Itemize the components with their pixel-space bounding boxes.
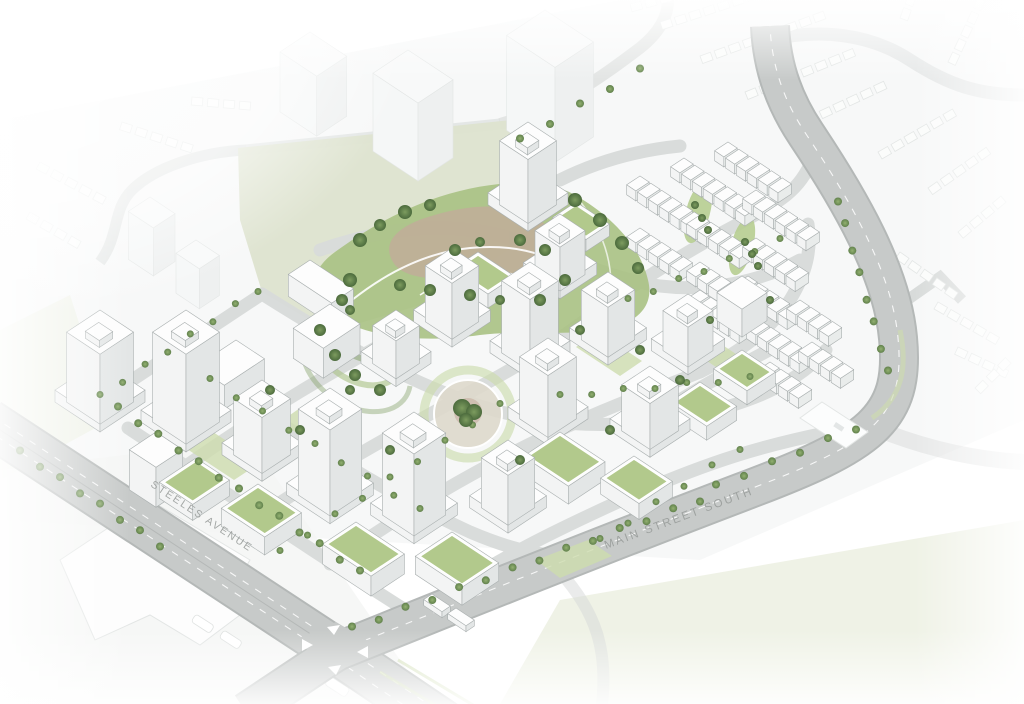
masterplan-rendering: STEELES AVENUE MAIN STREET SOUTH — [0, 0, 1024, 704]
tower — [287, 388, 374, 524]
masterplan-scene: STEELES AVENUE MAIN STREET SOUTH — [0, 0, 1024, 704]
tower — [141, 310, 231, 452]
